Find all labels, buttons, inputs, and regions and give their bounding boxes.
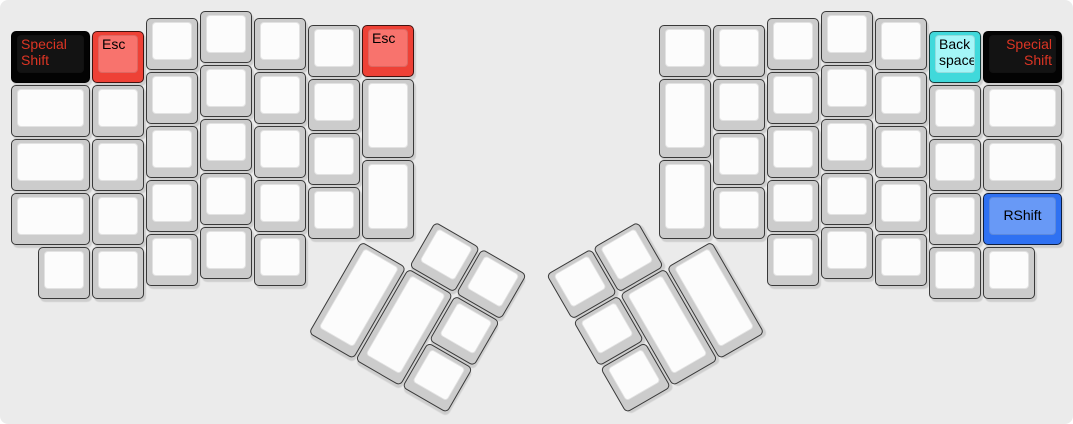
- key-back-space[interactable]: Back space: [929, 31, 981, 83]
- key-legend-text: RShift: [1003, 208, 1041, 224]
- keycap-top: [152, 76, 192, 114]
- keycap-top: [719, 137, 759, 175]
- keycap-top: [665, 29, 705, 67]
- keycap-top: [719, 83, 759, 121]
- key-blank[interactable]: [92, 139, 144, 191]
- keycap-top: [260, 76, 300, 114]
- keycap-label: Esc: [98, 35, 138, 73]
- keycap-top: [206, 15, 246, 53]
- key-blank[interactable]: [821, 11, 873, 63]
- key-blank[interactable]: [146, 126, 198, 178]
- key-blank[interactable]: [929, 193, 981, 245]
- keycap-top: [773, 22, 813, 60]
- keycap-top: [260, 130, 300, 168]
- keycap-top: [881, 76, 921, 114]
- keycap-top: [989, 251, 1029, 289]
- key-blank[interactable]: [713, 133, 765, 185]
- keycap-top: [206, 69, 246, 107]
- keycap-top: [665, 164, 705, 229]
- key-blank[interactable]: [659, 160, 711, 239]
- key-blank[interactable]: [308, 133, 360, 185]
- key-blank[interactable]: [875, 234, 927, 286]
- keycap-top: [719, 191, 759, 229]
- keycap-top: [989, 143, 1056, 181]
- keycap-top: [827, 177, 867, 215]
- keycap-top: [881, 130, 921, 168]
- keycap-top: [98, 251, 138, 289]
- key-blank[interactable]: [254, 234, 306, 286]
- keycap-top: [827, 123, 867, 161]
- keycap-top: [989, 89, 1056, 127]
- key-blank[interactable]: [200, 173, 252, 225]
- key-blank[interactable]: [713, 79, 765, 131]
- keycap-top: [152, 22, 192, 60]
- key-blank[interactable]: [821, 65, 873, 117]
- key-blank[interactable]: [875, 18, 927, 70]
- keycap-top: [260, 184, 300, 222]
- keycap-top: [773, 238, 813, 276]
- keycap-top: [368, 164, 408, 229]
- keycap-top: [98, 197, 138, 235]
- key-blank[interactable]: [146, 180, 198, 232]
- key-blank[interactable]: [983, 85, 1062, 137]
- keycap-top: [881, 238, 921, 276]
- key-blank[interactable]: [146, 72, 198, 124]
- key-legend-text: Back space: [939, 37, 975, 68]
- keycap-top: [881, 22, 921, 60]
- key-special-shift-2[interactable]: Special Shift: [983, 31, 1062, 83]
- key-legend-text: Special Shift: [993, 37, 1052, 68]
- key-blank[interactable]: [254, 18, 306, 70]
- key-blank[interactable]: [983, 247, 1035, 299]
- keycap-top: [206, 123, 246, 161]
- keycap-label: Special Shift: [989, 35, 1056, 73]
- keycap-top: [719, 29, 759, 67]
- key-blank[interactable]: [92, 85, 144, 137]
- key-legend-text: Esc: [372, 31, 395, 47]
- keycap-top: [368, 83, 408, 148]
- key-blank[interactable]: [821, 227, 873, 279]
- key-blank[interactable]: [767, 18, 819, 70]
- keycap-top: [466, 255, 520, 308]
- keycap-label: Esc: [368, 29, 408, 67]
- keycap-top: [152, 238, 192, 276]
- key-blank[interactable]: [308, 187, 360, 239]
- key-blank[interactable]: [254, 180, 306, 232]
- key-legend-text: Special Shift: [21, 37, 80, 68]
- keycap-label: RShift: [989, 197, 1056, 235]
- key-blank[interactable]: [767, 126, 819, 178]
- key-blank[interactable]: [659, 25, 711, 77]
- key-blank[interactable]: [200, 65, 252, 117]
- keycap-label: Back space: [935, 35, 975, 73]
- keycap-top: [881, 184, 921, 222]
- keycap-top: [773, 130, 813, 168]
- keycap-top: [206, 231, 246, 269]
- key-blank[interactable]: [200, 11, 252, 63]
- key-special-shift[interactable]: Special Shift: [11, 31, 90, 83]
- key-blank[interactable]: [92, 247, 144, 299]
- key-blank[interactable]: [92, 193, 144, 245]
- key-legend-text: Esc: [102, 37, 125, 53]
- keycap-top: [935, 89, 975, 127]
- keycap-top: [314, 83, 354, 121]
- key-blank[interactable]: [713, 25, 765, 77]
- keycap-top: [17, 143, 84, 181]
- key-blank[interactable]: [254, 72, 306, 124]
- key-blank[interactable]: [38, 247, 90, 299]
- keycap-top: [935, 251, 975, 289]
- key-blank[interactable]: [929, 85, 981, 137]
- key-blank[interactable]: [254, 126, 306, 178]
- keycap-top: [773, 76, 813, 114]
- key-rshift[interactable]: RShift: [983, 193, 1062, 245]
- keycap-top: [314, 29, 354, 67]
- key-blank[interactable]: [767, 180, 819, 232]
- keycap-top: [553, 255, 607, 308]
- keycap-top: [314, 191, 354, 229]
- key-blank[interactable]: [362, 160, 414, 239]
- key-blank[interactable]: [767, 72, 819, 124]
- keycap-top: [665, 83, 705, 148]
- key-blank[interactable]: [11, 139, 90, 191]
- key-blank[interactable]: [821, 173, 873, 225]
- key-blank[interactable]: [713, 187, 765, 239]
- key-blank[interactable]: [308, 25, 360, 77]
- keycap-top: [152, 184, 192, 222]
- keycap-top: [260, 22, 300, 60]
- key-blank[interactable]: [11, 85, 90, 137]
- keycap-top: [314, 137, 354, 175]
- keycap-top: [419, 228, 473, 281]
- keycap-top: [773, 184, 813, 222]
- keycap-top: [152, 130, 192, 168]
- keycap-label: Special Shift: [17, 35, 84, 73]
- keycap-top: [206, 177, 246, 215]
- keycap-top: [17, 89, 84, 127]
- key-blank[interactable]: [821, 119, 873, 171]
- keycap-top: [827, 231, 867, 269]
- keycap-top: [17, 197, 84, 235]
- keycap-top: [827, 69, 867, 107]
- key-esc-2[interactable]: Esc: [362, 25, 414, 77]
- key-blank[interactable]: [200, 227, 252, 279]
- keycap-top: [98, 89, 138, 127]
- keycap-top: [935, 143, 975, 181]
- key-esc[interactable]: Esc: [92, 31, 144, 83]
- keycap-top: [600, 228, 654, 281]
- key-blank[interactable]: [875, 126, 927, 178]
- key-blank[interactable]: [200, 119, 252, 171]
- key-blank[interactable]: [875, 180, 927, 232]
- key-blank[interactable]: [983, 139, 1062, 191]
- keyboard-canvas: Special ShiftEscEsc Back spaceSpecial Sh…: [0, 0, 1073, 424]
- keycap-top: [827, 15, 867, 53]
- key-blank[interactable]: [929, 139, 981, 191]
- key-blank[interactable]: [659, 79, 711, 158]
- key-blank[interactable]: [146, 18, 198, 70]
- key-blank[interactable]: [11, 193, 90, 245]
- key-blank[interactable]: [929, 247, 981, 299]
- keycap-top: [260, 238, 300, 276]
- keycap-top: [98, 143, 138, 181]
- key-blank[interactable]: [308, 79, 360, 131]
- key-blank[interactable]: [767, 234, 819, 286]
- key-blank[interactable]: [146, 234, 198, 286]
- key-blank[interactable]: [362, 79, 414, 158]
- keycap-top: [44, 251, 84, 289]
- key-blank[interactable]: [875, 72, 927, 124]
- keycap-top: [935, 197, 975, 235]
